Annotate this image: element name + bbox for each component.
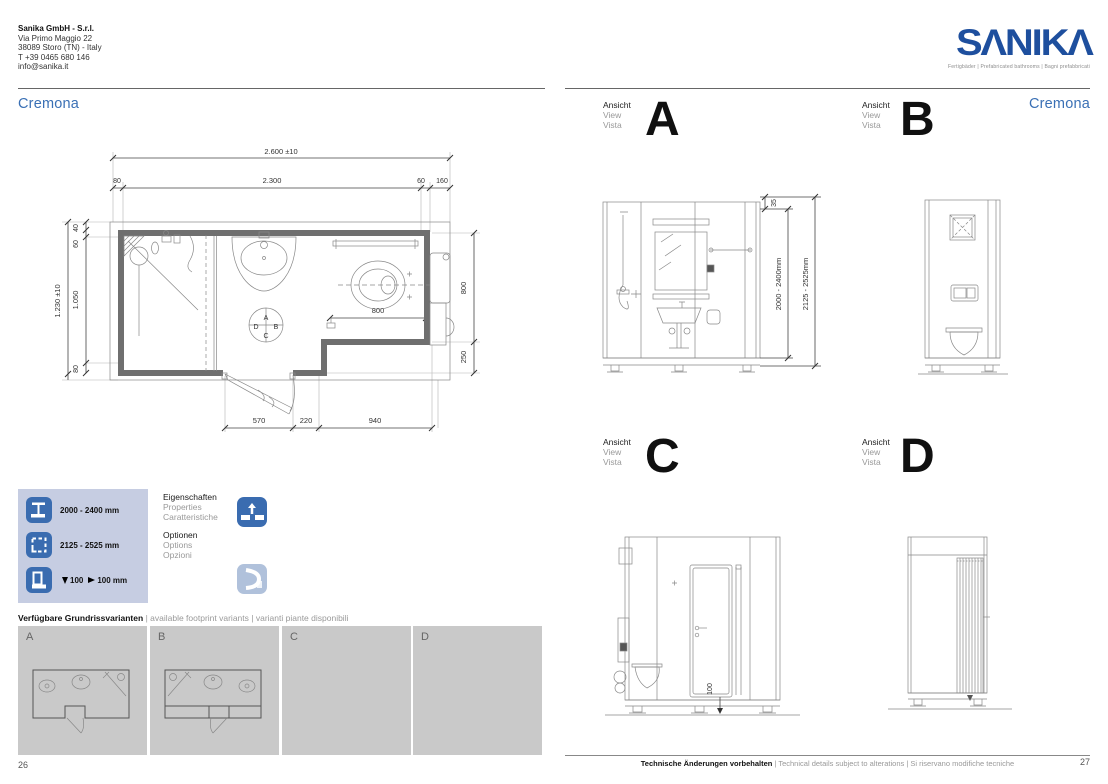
variants-heading-en: available footprint variants <box>150 613 249 623</box>
view-a-labels: Ansicht View Vista <box>603 100 631 130</box>
left-header-rule <box>18 88 545 89</box>
variant-d-label: D <box>421 631 429 643</box>
variants-heading-it: varianti piante disponibili <box>256 613 349 623</box>
dim-800-right: 800 <box>459 282 468 295</box>
company-name: Sanika GmbH - S.r.l. <box>18 24 94 33</box>
ansicht-label: Ansicht <box>862 437 890 447</box>
dim-external-height: 2125 - 2525mm <box>801 258 810 311</box>
left-page-title: Cremona <box>18 96 79 112</box>
elevation-a-drawing: 35 2000 - 2400mm 2125 - 2525mm <box>595 190 830 385</box>
floor-plan-drawing: 2.600 ±10 80 2.300 60 160 1.230 ±10 40 6… <box>38 140 498 450</box>
footer-de: Technische Änderungen vorbehalten <box>641 759 773 768</box>
variant-b-label: B <box>158 631 165 643</box>
view-label: View <box>862 110 890 120</box>
company-email: info@sanika.it <box>18 62 68 71</box>
elevation-c-drawing: 100 <box>595 525 810 760</box>
view-label: View <box>862 447 890 457</box>
dim-80: 80 <box>113 178 121 185</box>
right-page-title: Cremona <box>1029 96 1090 112</box>
down-arrow-icon <box>62 577 68 584</box>
view-d-letter: D <box>900 435 935 479</box>
company-address1: Via Primo Maggio 22 <box>18 34 92 43</box>
internal-height-icon <box>26 497 52 523</box>
footer-rule <box>565 755 1090 756</box>
external-height-icon <box>26 532 52 558</box>
options-labels: Optionen Options Opzioni <box>163 530 198 560</box>
variant-a-label: A <box>26 631 33 643</box>
properties-en: Properties <box>163 502 218 512</box>
dim-60: 60 <box>417 178 425 185</box>
legend-box: 2000 - 2400 mm 2125 - 2525 mm 100 <box>18 489 148 603</box>
toilet <box>338 261 430 309</box>
washbasin <box>232 232 296 291</box>
properties-labels: Eigenschaften Properties Caratteristiche <box>163 492 218 522</box>
plinth-arrow <box>717 708 723 714</box>
plan-walls <box>121 233 427 373</box>
elevation-d-drawing <box>880 525 1030 760</box>
ansicht-label: Ansicht <box>603 437 631 447</box>
options-de: Optionen <box>163 530 198 540</box>
variants-heading-de: Verfügbare Grundrissvarianten <box>18 613 143 623</box>
shower-hatch <box>124 236 144 256</box>
variant-a-box: A <box>18 626 147 755</box>
compass-b: B <box>274 324 279 331</box>
dim-1050: 1.050 <box>71 291 80 310</box>
view-c-labels: Ansicht View Vista <box>603 437 631 467</box>
company-phone: T +39 0465 680 146 <box>18 53 90 62</box>
dim-2300: 2.300 <box>263 176 282 185</box>
dim-plinth-100: 100 <box>707 683 714 695</box>
view-b-letter: B <box>900 98 935 142</box>
view-d-labels: Ansicht View Vista <box>862 437 890 467</box>
dim-80b: 80 <box>73 365 80 373</box>
floor-recess-icon <box>26 567 52 593</box>
curtain-bottom-arrow <box>967 695 973 701</box>
dim-570: 570 <box>253 416 266 425</box>
footer-note: Technische Änderungen vorbehalten | Tech… <box>565 759 1090 768</box>
shower-partition <box>214 236 217 371</box>
options-en: Options <box>163 540 198 550</box>
variant-b-box: B <box>150 626 279 755</box>
view-b-labels: Ansicht View Vista <box>862 100 890 130</box>
ansicht-label: Ansicht <box>862 100 890 110</box>
sanika-logo: SΛNIKΛ <box>956 26 1092 60</box>
variant-a-plan <box>23 648 143 748</box>
company-address2: 38089 Storo (TN) - Italy <box>18 43 102 52</box>
variants-heading: Verfügbare Grundrissvarianten | availabl… <box>18 613 348 623</box>
compass-a: A <box>264 315 269 322</box>
right-arrow-icon <box>88 577 95 583</box>
dim-800-inner: 800 <box>372 306 385 315</box>
variant-d-box: D <box>413 626 542 755</box>
view-c-letter: C <box>645 435 680 479</box>
dim-40: 40 <box>73 224 80 232</box>
dim-internal-height: 2000 - 2400mm <box>774 258 783 311</box>
variant-c-box: C <box>282 626 411 755</box>
dim-250: 250 <box>459 351 468 364</box>
floor-recess-label: 100 100 mm <box>60 576 127 585</box>
options-it: Opzioni <box>163 550 198 560</box>
dim-35: 35 <box>771 199 778 207</box>
dim-940: 940 <box>369 416 382 425</box>
view-label: View <box>603 447 631 457</box>
vista-label: Vista <box>603 120 631 130</box>
right-header-rule <box>565 88 1090 89</box>
vista-label: Vista <box>862 120 890 130</box>
dim-60b: 60 <box>73 240 80 248</box>
properties-it: Caratteristiche <box>163 512 218 522</box>
view-label: View <box>603 110 631 120</box>
compass-d: D <box>253 324 258 331</box>
ansicht-label: Ansicht <box>603 100 631 110</box>
adjustable-floor-icon <box>237 497 267 527</box>
footer-en: Technical details subject to alterations <box>778 759 904 768</box>
external-height-label: 2125 - 2525 mm <box>60 541 119 550</box>
grab-bar-option-icon <box>237 564 267 594</box>
view-a-letter: A <box>645 98 680 142</box>
dim-overall-height: 1.230 ±10 <box>53 284 62 317</box>
elevation-b-drawing <box>880 190 1035 385</box>
shower-fixtures <box>128 231 198 337</box>
datasheet-page: Sanika GmbH - S.r.l. Via Primo Maggio 22… <box>0 0 1108 784</box>
dim-160: 160 <box>436 178 448 185</box>
company-info: Sanika GmbH - S.r.l. Via Primo Maggio 22… <box>18 24 102 72</box>
properties-de: Eigenschaften <box>163 492 218 502</box>
vista-label: Vista <box>603 457 631 467</box>
variant-c-label: C <box>290 631 298 643</box>
left-page-number: 26 <box>18 760 28 770</box>
variants-row: A B C D <box>18 626 542 755</box>
variant-b-plan <box>155 648 275 748</box>
compass-c: C <box>263 333 268 340</box>
recess-right-value: 100 mm <box>97 576 127 585</box>
right-page-number: 27 <box>1080 757 1090 767</box>
footer-it: Si riservano modifiche tecniche <box>910 759 1014 768</box>
door <box>222 373 295 414</box>
dim-overall-width: 2.600 ±10 <box>264 147 297 156</box>
orientation-compass: A B C D <box>249 308 283 342</box>
dim-220: 220 <box>300 416 313 425</box>
logo-tagline: Fertigbäder | Prefabricated bathrooms | … <box>948 64 1090 70</box>
internal-height-label: 2000 - 2400 mm <box>60 506 119 515</box>
vista-label: Vista <box>862 457 890 467</box>
towel-bar <box>333 239 418 249</box>
recess-down-value: 100 <box>70 576 83 585</box>
external-service-column <box>430 253 454 345</box>
